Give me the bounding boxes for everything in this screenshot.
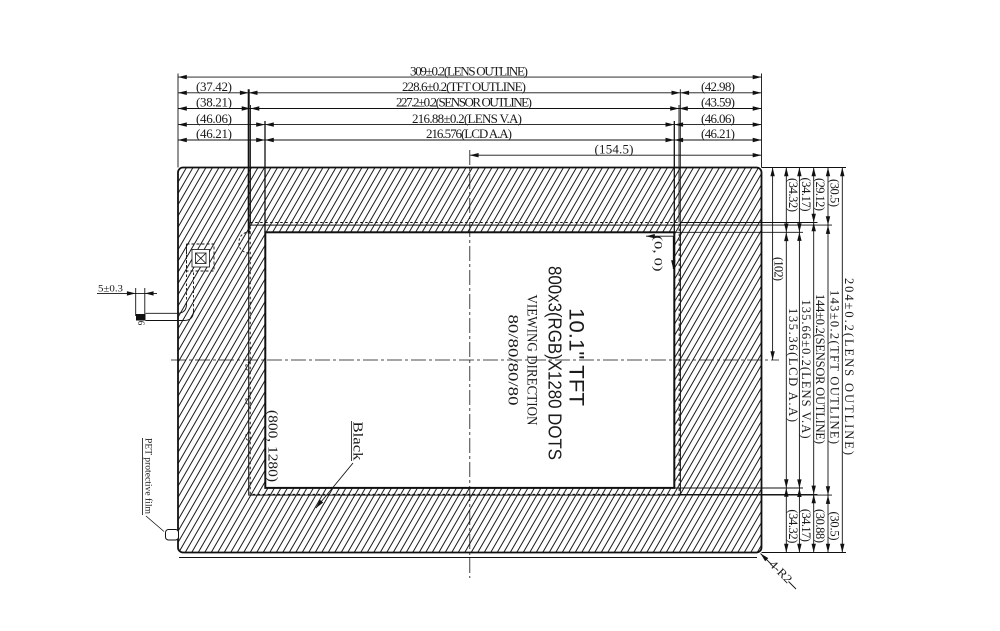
svg-text:135.66±0.2(LENS V.A): 135.66±0.2(LENS V.A) — [799, 300, 813, 439]
svg-text:800x3(RGB)X1280 DOTS: 800x3(RGB)X1280 DOTS — [545, 266, 565, 460]
svg-text:216.88±0.2(LENS V.A): 216.88±0.2(LENS V.A) — [412, 111, 522, 126]
svg-text:5±0.3: 5±0.3 — [98, 285, 123, 295]
svg-text:(30.88): (30.88) — [813, 509, 827, 543]
svg-text:227.2±0.2(SENSOR OUTLINE): 227.2±0.2(SENSOR OUTLINE) — [396, 95, 532, 110]
svg-text:(34.17): (34.17) — [799, 178, 813, 212]
svg-text:(800, 1280): (800, 1280) — [265, 410, 280, 482]
svg-text:(30.5): (30.5) — [828, 512, 842, 541]
svg-text:Black: Black — [351, 422, 366, 461]
svg-text:(37.42): (37.42) — [196, 79, 232, 94]
svg-text:(29.12): (29.12) — [813, 178, 827, 211]
svg-text:(0, 0): (0, 0) — [652, 236, 666, 272]
svg-text:(46.21): (46.21) — [196, 126, 232, 141]
svg-text:135.36(LCD A.A): 135.36(LCD A.A) — [786, 308, 800, 422]
svg-text:(46.21): (46.21) — [701, 126, 735, 141]
svg-text:VIEWING DIRECTION: VIEWING DIRECTION — [524, 295, 540, 426]
svg-text:(34.17): (34.17) — [799, 509, 813, 542]
svg-text:(46.06): (46.06) — [196, 111, 232, 126]
svg-text:143±0.2(TFT OUTLINE): 143±0.2(TFT OUTLINE) — [828, 290, 842, 444]
svg-text:(42.98): (42.98) — [701, 79, 735, 94]
svg-text:309±0.2(LENS OUTLINE): 309±0.2(LENS OUTLINE) — [410, 63, 528, 78]
svg-text:(46.06): (46.06) — [701, 111, 735, 126]
svg-text:(102): (102) — [772, 257, 786, 281]
svg-text:144±0.2(SENSOR OUTLINE): 144±0.2(SENSOR OUTLINE) — [813, 294, 827, 444]
svg-text:(34.32): (34.32) — [786, 178, 800, 212]
svg-text:10.1" TFT: 10.1" TFT — [565, 308, 588, 406]
svg-text:PET protective film: PET protective film — [144, 438, 154, 514]
svg-text:80/80/80/80: 80/80/80/80 — [505, 315, 521, 406]
svg-text:(34.32): (34.32) — [786, 509, 800, 543]
svg-text:216.576(LCD A.A): 216.576(LCD A.A) — [426, 126, 512, 141]
svg-text:(154.5): (154.5) — [595, 141, 634, 156]
svg-text:6: 6 — [136, 321, 146, 326]
svg-text:(43.59): (43.59) — [701, 95, 735, 110]
svg-text:(30.5): (30.5) — [828, 179, 842, 207]
svg-text:228.6±0.2(TFT OUTLINE): 228.6±0.2(TFT OUTLINE) — [402, 79, 526, 94]
svg-text:(38.21): (38.21) — [196, 95, 232, 110]
